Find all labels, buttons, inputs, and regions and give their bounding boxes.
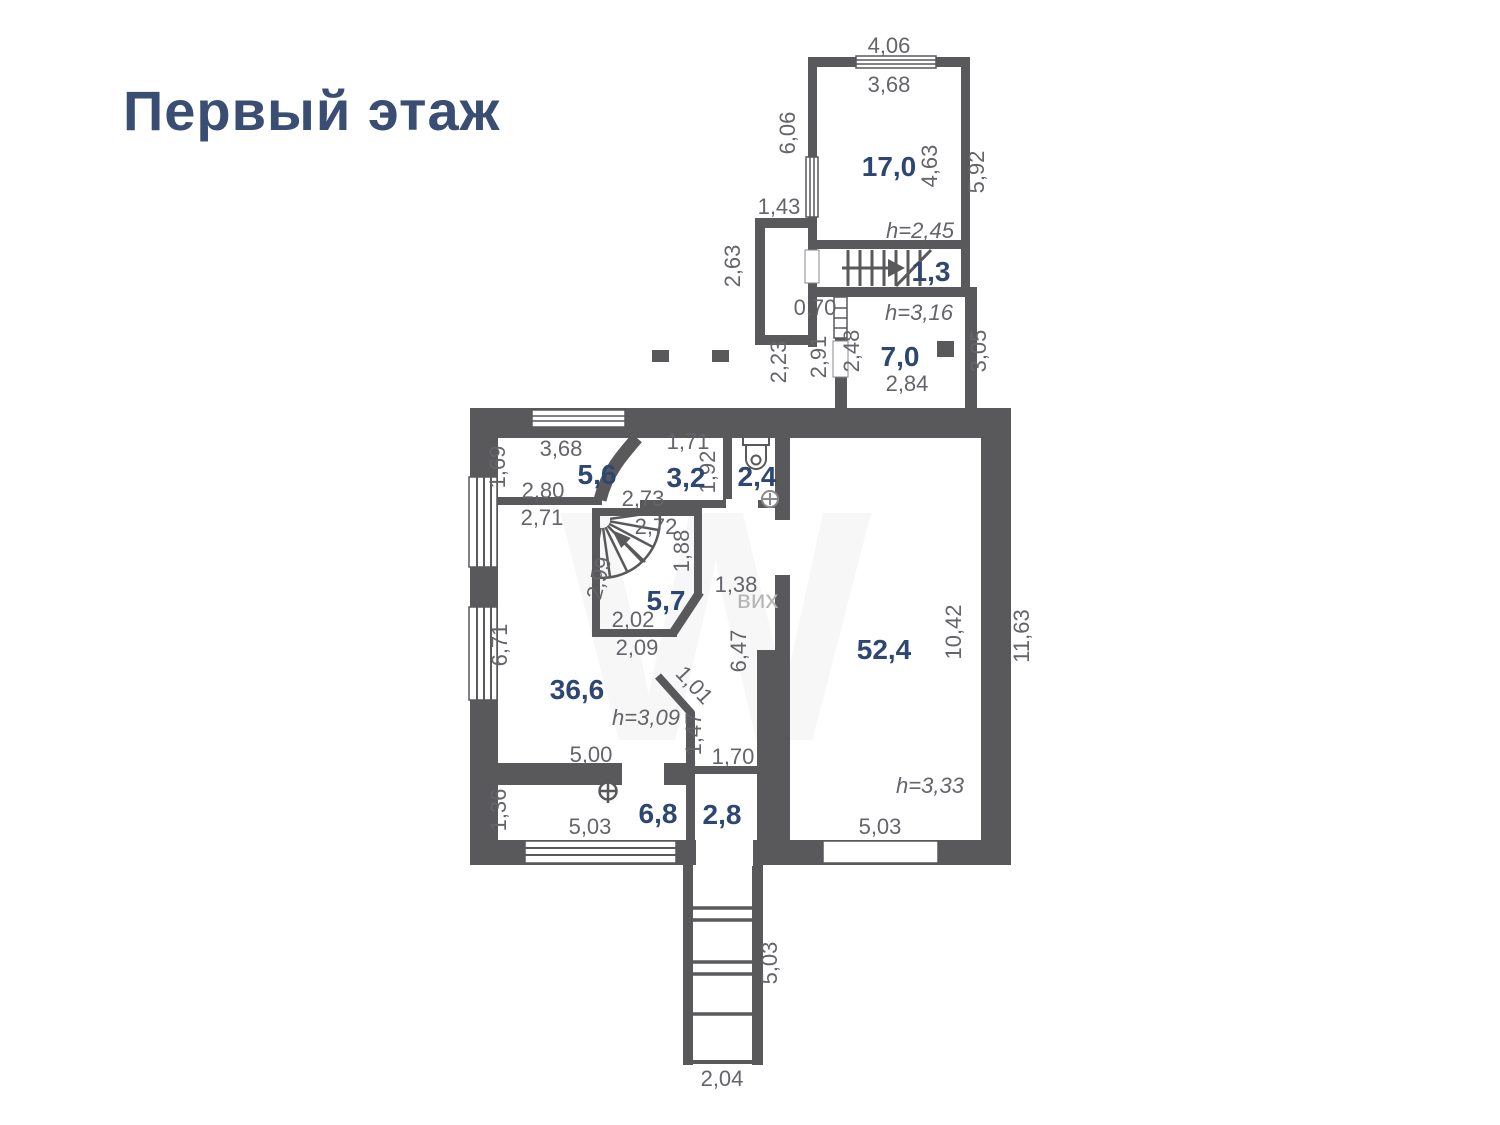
- dimension-label: 4,06: [868, 33, 911, 58]
- dimension-label: 4,63: [917, 145, 942, 188]
- room-3-2-area-label: 3,2: [667, 462, 706, 493]
- room-2-8-area-label: 2,8: [703, 799, 742, 830]
- room-5-6-area-label: 5,6: [578, 459, 617, 490]
- pillar: [652, 350, 669, 362]
- dimension-label: 5,92: [964, 151, 989, 194]
- room-7-0-area-label: 7,0: [881, 341, 920, 372]
- heater-icon: [762, 491, 778, 507]
- exterior-staircase: [693, 908, 752, 1062]
- ceiling-height-label: h=3,09: [612, 705, 680, 730]
- dimension-label: 2,48: [839, 330, 864, 373]
- floor-plan: W: [0, 0, 1500, 1125]
- dimension-label: 2,73: [622, 486, 665, 511]
- room-36-6-area-label: 36,6: [550, 674, 605, 705]
- dimension-label: 1,38: [715, 572, 758, 597]
- dimension-label: 2,63: [720, 245, 745, 288]
- page-title: Первый этаж: [123, 78, 500, 143]
- dimension-label: 1,71: [667, 429, 710, 454]
- dimension-label: 3,05: [966, 330, 991, 373]
- dimension-label: 2,71: [521, 505, 564, 530]
- dimension-label: 2,84: [886, 371, 929, 396]
- dimension-label: 1,70: [712, 744, 755, 769]
- dimension-label: 3,68: [868, 72, 911, 97]
- ceiling-height-label: h=2,45: [886, 218, 955, 243]
- dimension-label: 6,47: [726, 630, 751, 673]
- dimension-label: 5,03: [569, 814, 612, 839]
- dimension-label: 5,03: [859, 814, 902, 839]
- dimension-label: 2,04: [701, 1066, 744, 1091]
- dimension-label: 11,63: [1009, 609, 1034, 662]
- dimension-label: 6,06: [775, 112, 800, 155]
- dimension-label: 1,88: [669, 530, 694, 573]
- pillar: [712, 350, 729, 362]
- dimension-label: 5,00: [570, 742, 613, 767]
- dimension-label: 1,47: [681, 713, 706, 756]
- dimension-label: 1,36: [486, 789, 511, 832]
- room-52-4-area-label: 52,4: [857, 634, 912, 665]
- dimension-label: 2,09: [616, 635, 659, 660]
- floor-plan-page: Первый этаж W: [0, 0, 1500, 1125]
- room-5-7-area-label: 5,7: [647, 585, 686, 616]
- ceiling-height-label: h=3,33: [896, 773, 965, 798]
- dimension-label: 1,69: [485, 446, 510, 489]
- room-2-4-area-label: 2,4: [738, 461, 777, 492]
- dimension-label: 2,23: [766, 341, 791, 384]
- room-6-8-area-label: 6,8: [639, 798, 678, 829]
- dimension-label: 6,71: [487, 624, 512, 667]
- chimney-block: [937, 341, 954, 357]
- dimension-label: 2,91: [806, 336, 831, 379]
- dimension-label: 1,43: [758, 194, 801, 219]
- dimension-label: 0,70: [794, 295, 837, 320]
- room-17-0-area-label: 17,0: [862, 151, 917, 182]
- ceiling-height-label: h=3,16: [885, 300, 954, 325]
- dimension-label: 2,80: [522, 478, 565, 503]
- dimension-label: 10,42: [941, 604, 966, 659]
- dimension-label: 5,03: [757, 942, 782, 985]
- dimension-label: 3,68: [540, 436, 583, 461]
- room-1-3-area-label: 1,3: [912, 256, 951, 287]
